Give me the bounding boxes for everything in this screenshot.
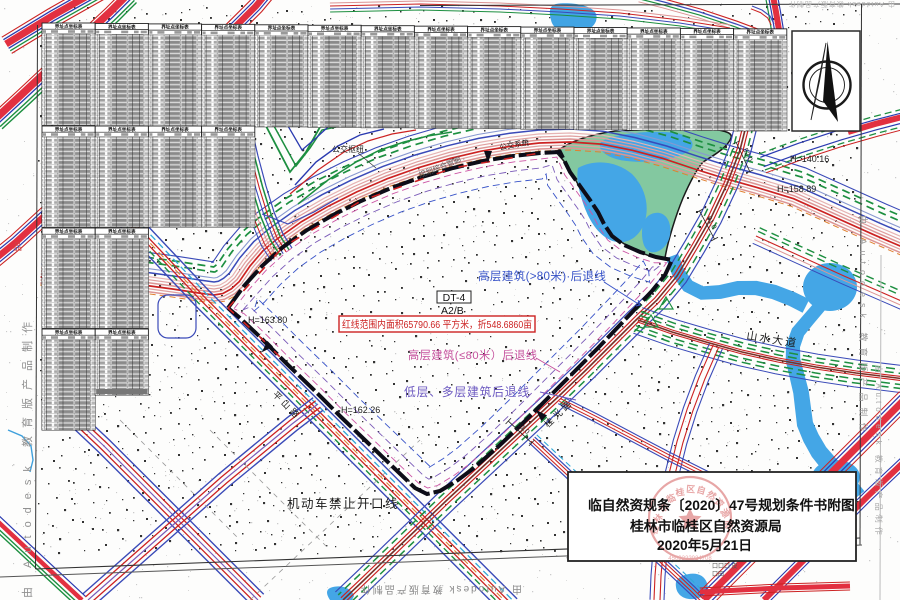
- svg-text:DT-4: DT-4: [443, 292, 466, 304]
- svg-text:界址点坐标表: 界址点坐标表: [321, 25, 349, 32]
- svg-text:界址点坐标表: 界址点坐标表: [55, 228, 83, 235]
- svg-text:界址点坐标表: 界址点坐标表: [587, 27, 615, 34]
- svg-text:桂林市临桂区自然资源局: 桂林市临桂区自然资源局: [629, 518, 782, 534]
- svg-text:界址点坐标表: 界址点坐标表: [55, 329, 83, 336]
- svg-text:界址点坐标表: 界址点坐标表: [161, 126, 189, 133]
- svg-text:口田: 口田: [712, 571, 724, 578]
- svg-text:2020年5月21日: 2020年5月21日: [657, 537, 752, 553]
- svg-text:界址点坐标表: 界址点坐标表: [108, 126, 136, 133]
- svg-text:H=162.26: H=162.26: [341, 405, 380, 415]
- svg-text:高层建筑(≤80米）后退线: 高层建筑(≤80米）后退线: [408, 348, 538, 362]
- svg-text:红线范围内面积65790.66 平方米，折548.6860亩: 红线范围内面积65790.66 平方米，折548.6860亩: [342, 318, 532, 331]
- svg-text:界址点坐标表: 界址点坐标表: [108, 329, 136, 336]
- svg-text:界址点坐标表: 界址点坐标表: [268, 25, 296, 32]
- svg-text:界址点坐标表: 界址点坐标表: [374, 26, 402, 33]
- svg-text:界址点坐标表: 界址点坐标表: [640, 28, 668, 35]
- svg-text:由 Autodesk 教育版产品制作: 由 Autodesk 教育版产品制作: [20, 314, 34, 598]
- svg-text:界址点坐标表: 界址点坐标表: [746, 29, 774, 36]
- svg-text:界址点坐标表: 界址点坐标表: [55, 126, 83, 133]
- svg-text:区: 区: [686, 484, 696, 495]
- svg-text:界址点坐标表: 界址点坐标表: [480, 26, 508, 33]
- svg-text:A2/B: A2/B: [441, 305, 464, 317]
- svg-text:界址点坐标表: 界址点坐标表: [214, 126, 242, 133]
- svg-text:品: 品: [13, 242, 22, 252]
- svg-text:4503222024708: 4503222024708: [668, 556, 712, 562]
- svg-text:由 Autodesk 教育版产品制作: 由 Autodesk 教育版产品制作: [788, 0, 895, 9]
- svg-text:低层、多层建筑后退线: 低层、多层建筑后退线: [404, 385, 530, 399]
- svg-text:临自然资规条〔2020〕47号规划条件书附图: 临自然资规条〔2020〕47号规划条件书附图: [588, 497, 855, 513]
- svg-text:H=158.89: H=158.89: [777, 184, 816, 194]
- svg-text:界址点坐标表: 界址点坐标表: [161, 24, 189, 31]
- svg-text:界址点坐标表: 界址点坐标表: [108, 228, 136, 235]
- svg-text:界址点坐标表: 界址点坐标表: [55, 23, 83, 30]
- svg-text:H=140.16: H=140.16: [790, 154, 829, 164]
- svg-text:桂: 桂: [674, 486, 685, 498]
- svg-text:由 Autodesk 教育版产品制作: 由 Autodesk 教育版产品制作: [858, 215, 869, 438]
- svg-text:机动车禁止开口线: 机动车禁止开口线: [287, 496, 399, 511]
- svg-text:界址点坐标表: 界址点坐标表: [108, 23, 136, 30]
- svg-text:由 Autodesk 教育版产品制作: 由 Autodesk 教育版产品制作: [359, 583, 522, 596]
- svg-text:由 Autodesk 教育版产品制作: 由 Autodesk 教育版产品制作: [874, 365, 884, 539]
- svg-text:公交枢纽: 公交枢纽: [332, 144, 364, 154]
- svg-text:高层建筑(>80米)·后退线: 高层建筑(>80米)·后退线: [478, 269, 606, 283]
- svg-text:界址点坐标表: 界址点坐标表: [693, 28, 721, 35]
- svg-text:界址点坐标表: 界址点坐标表: [534, 27, 562, 34]
- svg-text:口口口 皮: 口口口 皮: [712, 562, 738, 570]
- svg-text:界址点坐标表: 界址点坐标表: [214, 24, 242, 31]
- svg-text:界址点坐标表: 界址点坐标表: [427, 26, 455, 33]
- svg-text:H=163.80: H=163.80: [248, 315, 287, 325]
